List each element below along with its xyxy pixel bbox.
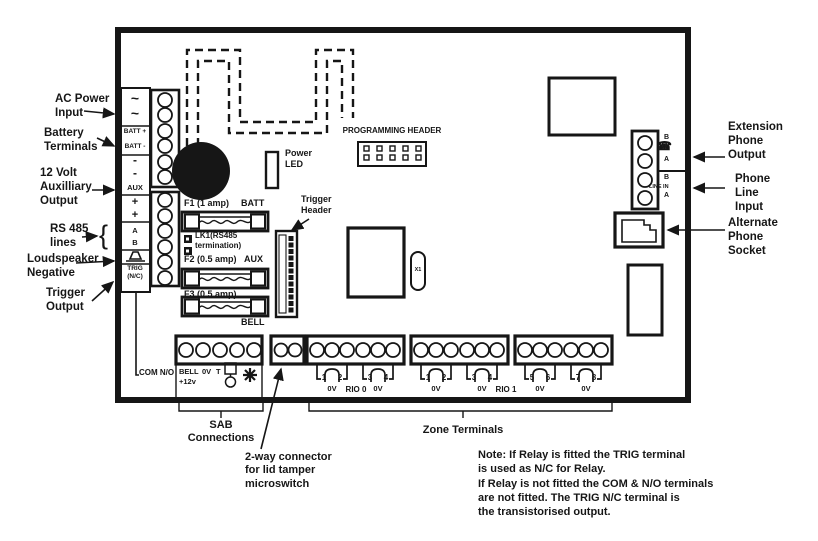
phone-line-a-label: A — [664, 192, 669, 201]
rs485-brace: { — [99, 219, 108, 252]
zone-number: 5 — [530, 373, 534, 383]
tamper-connector-caption: 2-way connector for lid tamper microswit… — [245, 451, 332, 491]
callout-phone-line: Phone Line Input — [735, 172, 770, 214]
fuse-f1-label: F1 (1 amp) — [184, 198, 229, 209]
rio-1-label: RIO 1 — [496, 385, 517, 395]
zone-number: 3 — [368, 373, 372, 383]
zone-0v-label: 0V — [431, 384, 440, 393]
callout-ac-power: AC Power Input — [55, 92, 109, 120]
strip-label-aux: AUX — [127, 183, 143, 192]
strip-label-plus1: + — [132, 196, 138, 209]
callout-rs485: RS 485 lines — [50, 222, 88, 250]
lk1-label: LK1(RS485 termination) — [195, 231, 241, 251]
sab-12v-label: +12v — [179, 377, 196, 386]
zone-number: 4 — [384, 373, 388, 383]
fuse-f1-assoc: BATT — [241, 198, 264, 209]
callout-extension-phone: Extension Phone Output — [728, 120, 783, 162]
zone-number: 7 — [576, 373, 580, 383]
zone-0v-label: 0V — [581, 384, 590, 393]
fuse-f3-label: F3 (0.5 amp) — [184, 289, 237, 300]
callout-battery: Battery Terminals — [44, 126, 97, 154]
programming-header-label: PROGRAMMING HEADER — [343, 126, 442, 136]
phone-line-b-label: B — [664, 174, 669, 183]
zone-terminals-caption: Zone Terminals — [423, 424, 503, 437]
relay-note: Note: If Relay is fitted the TRIG termin… — [478, 448, 713, 519]
zone-0v-label: 0V — [373, 384, 382, 393]
phone-line-in-label: LINE IN — [649, 184, 669, 191]
zone-number: 4 — [488, 373, 492, 383]
zone-number: 2 — [442, 373, 446, 383]
phone-ext-a-label: A — [664, 156, 669, 165]
fuse-f3-assoc: BELL — [241, 317, 265, 328]
piezo-sounder — [172, 142, 230, 200]
strip-label-minus2: - — [133, 166, 137, 181]
telephone-icon: ☎ — [657, 139, 672, 154]
fuse-f2-label: F2 (0.5 amp) — [184, 254, 237, 265]
zone-number: 1 — [322, 373, 326, 383]
led-star-icon — [243, 368, 257, 382]
crystal-x1-label: X1 — [415, 267, 422, 274]
power-led-label: Power LED — [285, 148, 312, 170]
sab-bell-label: BELL — [179, 367, 199, 376]
strip-label-b: B — [132, 238, 137, 247]
zone-number: 2 — [338, 373, 342, 383]
trigger-header-label: Trigger Header — [301, 194, 332, 216]
zone-number: 3 — [472, 373, 476, 383]
callout-trigger-output: Trigger Output — [46, 286, 85, 314]
sab-connections-caption: SAB Connections — [188, 419, 255, 446]
strip-label-batt-minus: BATT - — [125, 143, 146, 151]
callout-alternate-phone: Alternate Phone Socket — [728, 216, 778, 258]
zone-number: 1 — [426, 373, 430, 383]
zone-number: 8 — [592, 373, 596, 383]
com-no-label: COM N/O — [139, 368, 174, 378]
zone-number: 6 — [546, 373, 550, 383]
zone-0v-label: 0V — [327, 384, 336, 393]
caption-brackets — [179, 403, 612, 418]
strip-label-trig: TRIG (N/C) — [127, 265, 143, 281]
pcb-wiring-diagram: { "callouts": { "left": [ {"id": "ac-pow… — [0, 0, 818, 541]
callout-aux-12v: 12 Volt Auxilliary Output — [40, 166, 92, 208]
fuse-f2-assoc: AUX — [244, 254, 263, 265]
callout-loudspeaker: Loudspeaker Negative — [27, 252, 99, 280]
sab-0v-label: 0V — [202, 367, 211, 376]
strip-label-a: A — [132, 226, 137, 235]
strip-label-batt-plus: BATT + — [124, 128, 146, 136]
strip-label-plus2: + — [132, 209, 138, 222]
sab-t-label: T — [216, 367, 221, 376]
rio-0-label: RIO 0 — [346, 385, 367, 395]
strip-label-ac2: ~ — [131, 105, 139, 122]
zone-0v-label: 0V — [477, 384, 486, 393]
zone-0v-label: 0V — [535, 384, 544, 393]
